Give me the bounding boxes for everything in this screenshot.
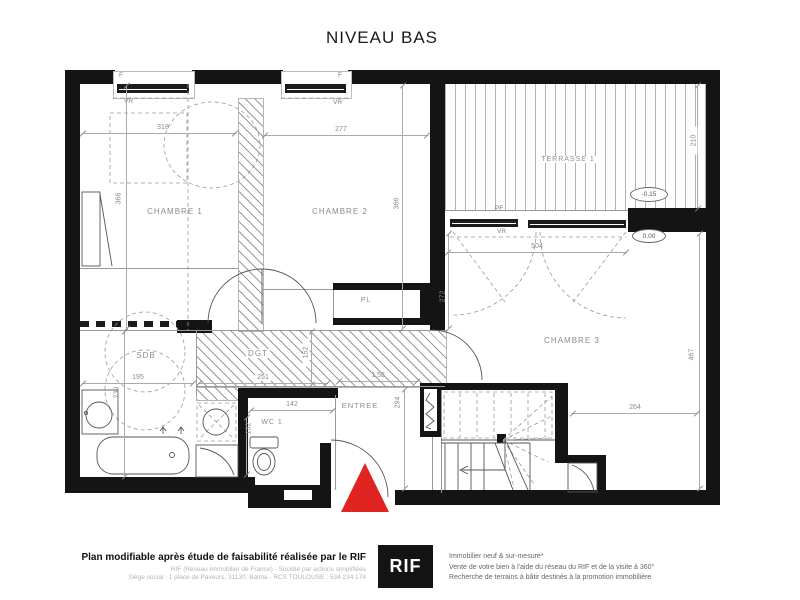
footer-company-line1: RIF (Réseau Immobilier de France) - Soci… bbox=[60, 566, 366, 573]
dim-wc-width: 142 bbox=[286, 401, 298, 408]
dim-dgt-width: 251 bbox=[255, 374, 271, 381]
dim-line bbox=[338, 381, 418, 382]
bathtub bbox=[97, 437, 189, 474]
room-label-chambre1: CHAMBRE 1 bbox=[147, 207, 203, 216]
bathtub-drain bbox=[170, 453, 175, 458]
dim-chambre2-width: 277 bbox=[335, 126, 347, 133]
dim-line bbox=[264, 135, 428, 136]
dim-chambre3-right: 467 bbox=[689, 343, 696, 367]
dim-chambre3-bottom: 264 bbox=[629, 404, 641, 411]
stair-walk-line-arrow bbox=[460, 441, 505, 474]
door-swing-dashed bbox=[453, 232, 536, 315]
dim-line bbox=[250, 410, 334, 411]
toilet bbox=[250, 437, 278, 448]
room-label-chambre2: CHAMBRE 2 bbox=[312, 207, 368, 216]
dim-sdb-width: 195 bbox=[132, 374, 144, 381]
washbasin bbox=[86, 402, 112, 428]
dim-entree-width: 1.58 bbox=[371, 372, 385, 379]
closet-door-curve bbox=[572, 465, 594, 491]
dim-line bbox=[198, 383, 328, 384]
cupboard bbox=[196, 445, 238, 477]
door-arc bbox=[432, 330, 482, 380]
dim-line bbox=[311, 332, 312, 384]
toilet-bowl-inner bbox=[258, 454, 271, 471]
dim-entree-height: 294 bbox=[395, 391, 402, 415]
room-label-chambre3: CHAMBRE 3 bbox=[544, 336, 600, 345]
dim-line bbox=[447, 252, 627, 253]
cupboard-door-curve bbox=[200, 448, 234, 475]
room-label-dgt: DGT bbox=[246, 349, 270, 358]
arrow-icon bbox=[160, 427, 166, 434]
dim-line bbox=[699, 234, 700, 488]
dim-chambre3-top: 504 bbox=[531, 243, 543, 250]
dim-line bbox=[404, 390, 405, 488]
room-label-entree: ENTREE bbox=[342, 401, 378, 410]
level-marker-terrace: -0.15 bbox=[630, 187, 668, 202]
dim-line bbox=[402, 86, 403, 328]
room-label-placard: PL bbox=[361, 297, 372, 304]
dim-chambre3-left: 272 bbox=[440, 285, 447, 309]
closet bbox=[568, 463, 597, 492]
dim-terrasse-depth: 210 bbox=[691, 127, 698, 155]
room-label-terrasse: TERRASSE 1 bbox=[539, 156, 597, 163]
footer-disclaimer: Plan modifiable après étude de faisabili… bbox=[60, 552, 366, 563]
dashed-clearance-circle bbox=[164, 102, 260, 188]
arrow-icon bbox=[178, 427, 184, 434]
room-label-wc: WC 1 bbox=[261, 419, 283, 426]
footer-service-line2: Vente de votre bien à l'aide du réseau d… bbox=[449, 564, 654, 571]
plan-linework bbox=[0, 0, 800, 600]
rif-logo: RIF bbox=[378, 545, 433, 588]
footer-service-line1: Immobilier neuf & sur-mesure* bbox=[449, 553, 544, 560]
footer-service-line3: Recherche de terrains à bâtir destinés à… bbox=[449, 574, 651, 581]
dim-line bbox=[448, 234, 449, 328]
dim-sdb-height: 239 bbox=[114, 381, 121, 405]
toilet-bowl bbox=[253, 449, 275, 475]
footer-company-line2: Siège social : 1 place de Paveurs, 31130… bbox=[60, 574, 366, 581]
dim-line bbox=[126, 86, 127, 328]
dim-wc-height: 132 bbox=[246, 417, 253, 441]
dim-line bbox=[124, 332, 125, 476]
level-marker-ground: 0.00 bbox=[632, 229, 666, 243]
wardrobe-door-line bbox=[100, 194, 112, 266]
stair-lower-treads bbox=[441, 443, 530, 490]
dim-dgt-height: 152 bbox=[303, 339, 310, 367]
dim-line bbox=[82, 133, 236, 134]
floor-plan-page: NIVEAU BAS F VR F VR PF VR bbox=[0, 0, 800, 600]
dim-chambre1-width: 318 bbox=[157, 124, 169, 131]
dim-line bbox=[572, 413, 698, 414]
room-label-sdb: SDB bbox=[136, 351, 155, 360]
dim-chambre1-height: 366 bbox=[116, 187, 123, 211]
dim-chambre2-height: 366 bbox=[394, 192, 401, 216]
door-swing-dashed bbox=[540, 232, 626, 318]
wardrobe bbox=[82, 192, 100, 266]
radiator-icon bbox=[426, 393, 434, 429]
stair-treads-dashed bbox=[460, 393, 545, 437]
dim-line bbox=[82, 383, 194, 384]
